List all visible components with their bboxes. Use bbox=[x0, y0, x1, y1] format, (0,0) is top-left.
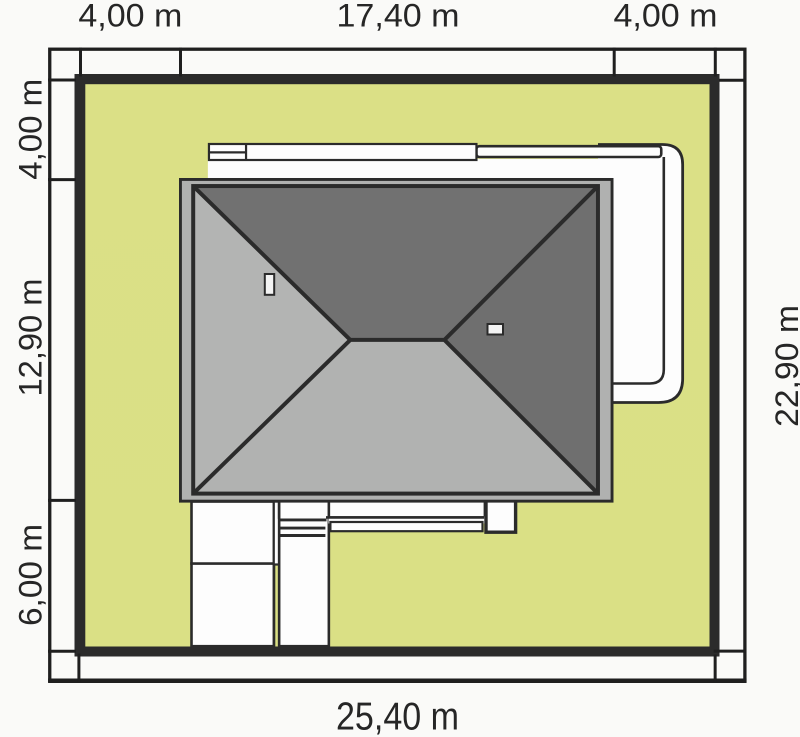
svg-text:17,40 m: 17,40 m bbox=[337, 0, 460, 33]
svg-text:4,00 m: 4,00 m bbox=[12, 79, 48, 180]
svg-text:4,00 m: 4,00 m bbox=[614, 0, 718, 33]
svg-text:25,40 m: 25,40 m bbox=[336, 695, 459, 737]
svg-text:12,90 m: 12,90 m bbox=[12, 279, 48, 397]
svg-text:4,00 m: 4,00 m bbox=[78, 0, 182, 33]
svg-text:22,90 m: 22,90 m bbox=[769, 305, 800, 427]
svg-text:6,00 m: 6,00 m bbox=[12, 524, 48, 626]
